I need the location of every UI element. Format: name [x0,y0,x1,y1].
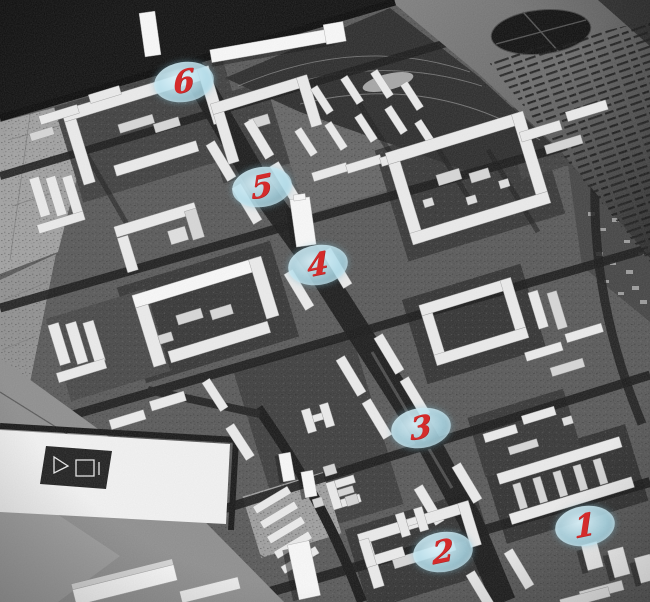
marker-number: 6 [173,64,195,100]
marker-number: 5 [251,169,273,205]
city-model-photo: 123456 [0,0,650,602]
city-model-scene [0,0,650,602]
marker-number: 1 [574,508,596,544]
marker-number: 3 [410,410,432,446]
marker-number: 4 [307,247,329,283]
vignette [0,0,650,602]
marker-number: 2 [432,534,454,570]
